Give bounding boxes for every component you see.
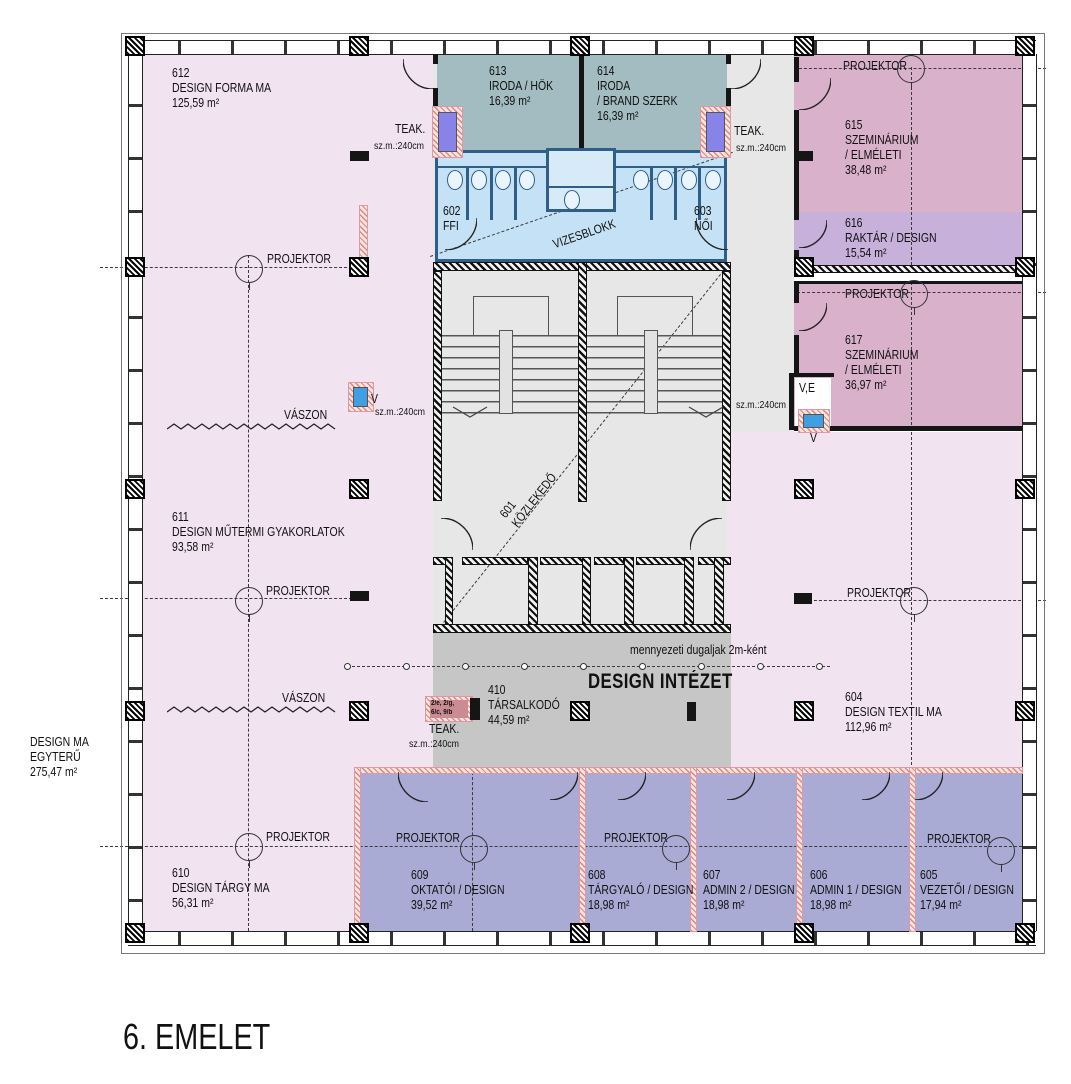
- grid-column: [125, 701, 145, 721]
- room-609-name: OKTATÓI / DESIGN: [411, 883, 505, 898]
- door-arc: [618, 772, 646, 800]
- room-615-area: 38,48 m²: [845, 163, 919, 178]
- grid-column: [794, 257, 814, 277]
- stair-wall: [722, 271, 731, 501]
- room-607-num: 607: [703, 868, 795, 883]
- sink-label: V: [371, 392, 378, 407]
- stair-wall: [578, 262, 587, 502]
- wall: [433, 54, 438, 64]
- toilet-fixture: [495, 170, 511, 190]
- ceiling-socket-note: mennyezeti dugaljak 2m-ként: [630, 643, 767, 658]
- toilet-fixture: [681, 170, 697, 190]
- ceiling-element: [350, 151, 369, 161]
- room-606-label: 606 ADMIN 1 / DESIGN 18,98 m²: [810, 868, 902, 913]
- vaszon-zigzag: [167, 705, 339, 714]
- shaft-wall: [462, 557, 528, 565]
- ve-room-label: V,E: [799, 381, 815, 396]
- projektor-label: PROJEKTOR: [604, 831, 668, 846]
- grid-column: [125, 923, 145, 943]
- room-615-name: SZEMINÁRIUM: [845, 133, 919, 148]
- grid-column: [349, 923, 369, 943]
- room-617-name: SZEMINÁRIUM: [845, 348, 919, 363]
- room-611-name: DESIGN MŰTERMI GYAKORLATOK: [172, 525, 345, 540]
- ceiling-element: [794, 151, 813, 161]
- room-612-num: 612: [172, 66, 271, 81]
- grid-column: [794, 36, 814, 56]
- room-616-num: 616: [845, 216, 937, 231]
- room-615-num: 615: [845, 118, 919, 133]
- projektor-label: PROJEKTOR: [266, 584, 330, 599]
- room-609-area: 39,52 m²: [411, 898, 505, 913]
- door-arc: [731, 59, 761, 89]
- projector-symbol: [900, 280, 928, 308]
- room-614-name: IRODA: [597, 79, 678, 94]
- shaft-wall: [445, 557, 453, 632]
- room-617-label: 617 SZEMINÁRIUM / ELMÉLETI 36,97 m²: [845, 333, 919, 393]
- ceiling-element: [470, 698, 480, 720]
- grid-column: [1015, 923, 1035, 943]
- institute-title: DESIGN INTÉZET: [588, 670, 733, 694]
- room-605-label: 605 VEZETŐI / DESIGN 17,94 m²: [920, 868, 1014, 913]
- ceiling-socket-marker: [344, 663, 351, 670]
- projector-symbol: [235, 587, 263, 615]
- room-612-area: 125,59 m²: [172, 96, 271, 111]
- room-614-num: 614: [597, 64, 678, 79]
- ceiling-element: [350, 591, 369, 601]
- screen-strip: [360, 206, 367, 261]
- sink: [353, 387, 368, 407]
- projector-symbol: [987, 837, 1015, 865]
- room-608-name: TÁRGYALÓ / DESIGN: [588, 883, 693, 898]
- shaft-wall: [540, 557, 584, 565]
- projektor-label: PROJEKTOR: [927, 832, 991, 847]
- grid-column: [570, 36, 590, 56]
- room-603-num: 603: [694, 204, 713, 219]
- room-612-label: 612 DESIGN FORMA MA 125,59 m²: [172, 66, 271, 111]
- ceiling-socket-marker: [816, 663, 823, 670]
- door-arc: [862, 772, 890, 800]
- wall: [794, 110, 799, 212]
- projektor-label: PROJEKTOR: [396, 831, 460, 846]
- room-606-area: 18,98 m²: [810, 898, 902, 913]
- room-607-label: 607 ADMIN 2 / DESIGN 18,98 m²: [703, 868, 795, 913]
- ceiling-socket-marker: [403, 663, 410, 670]
- room-606-name: ADMIN 1 / DESIGN: [810, 883, 902, 898]
- door-arc: [398, 772, 428, 802]
- teak-height-label: sz.m.:240cm: [409, 738, 459, 750]
- toilet-fixture: [564, 190, 580, 210]
- grid-column: [125, 36, 145, 56]
- room-607-area: 18,98 m²: [703, 898, 795, 913]
- toilet-partition: [674, 168, 677, 220]
- grid-column: [1015, 701, 1035, 721]
- room-608-area: 18,98 m²: [588, 898, 693, 913]
- shaft-wall: [624, 557, 634, 632]
- room-613-label: 613 IRODA / HÖK 16,39 m²: [489, 64, 553, 109]
- design-ma-label: DESIGN MA EGYTERŰ 275,47 m²: [30, 735, 89, 780]
- room-410-area: 44,59 m²: [488, 713, 560, 728]
- room-612-name: DESIGN FORMA MA: [172, 81, 271, 96]
- ceiling-element: [687, 702, 696, 721]
- design-ma-name: DESIGN MA: [30, 735, 89, 750]
- grid-column: [794, 479, 814, 499]
- ceiling-element: [794, 593, 812, 604]
- room-613-num: 613: [489, 64, 553, 79]
- shaft-wall: [636, 557, 686, 565]
- room-605-name: VEZETŐI / DESIGN: [920, 883, 1014, 898]
- sink-height-label: sz.m.:240cm: [736, 399, 786, 411]
- duct-divider: [549, 186, 613, 188]
- sink-label: V: [810, 431, 817, 446]
- toilet-fixture: [657, 170, 673, 190]
- door-arc: [696, 218, 728, 250]
- stair-arrow: [452, 406, 488, 419]
- teak-unit: [438, 112, 457, 152]
- toilet-fixture: [447, 170, 463, 190]
- door-arc: [403, 59, 433, 89]
- door-arc: [799, 78, 831, 110]
- ceiling-socket-marker: [757, 663, 764, 670]
- teak-label: TEAK.: [734, 124, 764, 139]
- ceiling-socket-marker: [698, 663, 705, 670]
- room-617-name2: / ELMÉLETI: [845, 363, 919, 378]
- door-arc: [799, 303, 827, 331]
- room-604-num: 604: [845, 690, 942, 705]
- stair-arrow: [688, 406, 724, 419]
- shaft-wall: [433, 624, 731, 633]
- vaszon-label: VÁSZON: [284, 408, 327, 423]
- grid-column: [349, 701, 369, 721]
- projector-symbol: [897, 55, 925, 83]
- partition-wall: [797, 768, 802, 931]
- room-606-num: 606: [810, 868, 902, 883]
- design-ma-area: 275,47 m²: [30, 765, 89, 780]
- ceiling-socket-marker: [462, 663, 469, 670]
- grid-column: [349, 479, 369, 499]
- wall-613-614-divider: [579, 54, 584, 152]
- room-609-label: 609 OKTATÓI / DESIGN 39,52 m²: [411, 868, 505, 913]
- projektor-label: PROJEKTOR: [267, 252, 331, 267]
- stair-wall: [433, 271, 442, 501]
- sink-height-label: sz.m.:240cm: [375, 406, 425, 418]
- shaft-wall: [594, 557, 624, 565]
- toilet-partition: [490, 168, 493, 220]
- room-605-num: 605: [920, 868, 1014, 883]
- teak-unit: [706, 112, 725, 152]
- shaft-wall: [582, 557, 591, 632]
- door-arc: [915, 772, 943, 800]
- vaszon-zigzag: [167, 422, 339, 431]
- duct-shaft: [546, 148, 616, 212]
- teak-height-label: sz.m.:240cm: [736, 142, 786, 154]
- room-610-num: 610: [172, 866, 270, 881]
- wall: [794, 212, 799, 220]
- toilet-fixture: [633, 170, 649, 190]
- vaszon-label: VÁSZON: [282, 691, 325, 706]
- ceiling-socket-marker: [580, 663, 587, 670]
- projector-symbol: [235, 255, 263, 283]
- shaft-wall: [684, 557, 694, 632]
- room-614-label: 614 IRODA / BRAND SZERK 16,39 m²: [597, 64, 678, 124]
- ceiling-socket-marker: [639, 663, 646, 670]
- grid-column: [570, 701, 590, 721]
- room-615-label: 615 SZEMINÁRIUM / ELMÉLETI 38,48 m²: [845, 118, 919, 178]
- projektor-label: PROJEKTOR: [266, 830, 330, 845]
- partition-wall: [355, 768, 360, 931]
- design-ma-name2: EGYTERŰ: [30, 750, 89, 765]
- room-604-area: 112,96 m²: [845, 720, 942, 735]
- projector-symbol: [460, 835, 488, 863]
- door-arc: [690, 518, 722, 550]
- room-604-label: 604 DESIGN TEXTIL MA 112,96 m²: [845, 690, 942, 735]
- room-608-label: 608 TÁRGYALÓ / DESIGN 18,98 m²: [588, 868, 693, 913]
- teak-label: TEAK.: [429, 722, 459, 737]
- room-410-num: 410: [488, 683, 560, 698]
- stair-newel: [499, 330, 513, 414]
- room-607-name: ADMIN 2 / DESIGN: [703, 883, 795, 898]
- wall: [794, 335, 799, 377]
- floor-title: 6. EMELET: [123, 1016, 270, 1058]
- wall-616-bottom: [794, 265, 1022, 273]
- sink: [803, 414, 824, 428]
- stair-newel: [644, 330, 658, 414]
- door-arc: [799, 220, 827, 248]
- room-614-area: 16,39 m²: [597, 109, 678, 124]
- grid-column: [349, 36, 369, 56]
- room-614-name2: / BRAND SZERK: [597, 94, 678, 109]
- toilet-fixture: [519, 170, 535, 190]
- room-611-area: 93,58 m²: [172, 540, 345, 555]
- grid-column: [794, 701, 814, 721]
- toilet-fixture: [705, 170, 721, 190]
- wall-ve-room: [789, 373, 834, 377]
- shaft-wall: [714, 557, 724, 632]
- teak-ref-note: 6/c, 9/b: [431, 709, 452, 717]
- room-611-num: 611: [172, 510, 345, 525]
- teak-ref-note: 2/e, 2/g,: [431, 700, 454, 708]
- room-604-name: DESIGN TEXTIL MA: [845, 705, 942, 720]
- room-617-num: 617: [845, 333, 919, 348]
- room-616-label: 616 RAKTÁR / DESIGN 15,54 m²: [845, 216, 937, 261]
- teak-height-label: sz.m.:240cm: [374, 140, 424, 152]
- room-617-area: 36,97 m²: [845, 378, 919, 393]
- teak-label: TEAK.: [395, 122, 425, 137]
- grid-column: [125, 257, 145, 277]
- floor-plan: 612 DESIGN FORMA MA 125,59 m² 613 IRODA …: [0, 0, 1071, 1084]
- room-613-name: IRODA / HÖK: [489, 79, 553, 94]
- door-arc: [727, 772, 755, 800]
- grid-column: [1015, 479, 1035, 499]
- room-616-area: 15,54 m²: [845, 246, 937, 261]
- grid-column: [794, 923, 814, 943]
- room-605-area: 17,94 m²: [920, 898, 1014, 913]
- projector-symbol: [900, 587, 928, 615]
- grid-column: [125, 479, 145, 499]
- room-609-num: 609: [411, 868, 505, 883]
- room-616-name: RAKTÁR / DESIGN: [845, 231, 937, 246]
- ceiling-socket-marker: [521, 663, 528, 670]
- room-613-area: 16,39 m²: [489, 94, 553, 109]
- grid-column: [570, 923, 590, 943]
- grid-column: [1015, 36, 1035, 56]
- projector-symbol: [662, 835, 690, 863]
- room-610-label: 610 DESIGN TÁRGY MA 56,31 m²: [172, 866, 270, 911]
- room-610-area: 56,31 m²: [172, 896, 270, 911]
- shaft-wall: [528, 557, 538, 632]
- projector-symbol: [235, 833, 263, 861]
- toilet-partition: [466, 168, 469, 220]
- grid-column: [1015, 257, 1035, 277]
- toilet-fixture: [471, 170, 487, 190]
- door-arc: [550, 772, 578, 800]
- room-608-num: 608: [588, 868, 693, 883]
- toilet-partition: [514, 168, 517, 220]
- door-arc: [441, 518, 473, 550]
- room-602-num: 602: [443, 204, 461, 219]
- grid-column: [349, 257, 369, 277]
- room-611-label: 611 DESIGN MŰTERMI GYAKORLATOK 93,58 m²: [172, 510, 345, 555]
- room-615-name2: / ELMÉLETI: [845, 148, 919, 163]
- room-410-label: 410 TÁRSALKODÓ 44,59 m²: [488, 683, 560, 728]
- toilet-partition: [650, 168, 653, 220]
- wall: [794, 283, 799, 303]
- door-arc: [445, 218, 477, 250]
- room-610-name: DESIGN TÁRGY MA: [172, 881, 270, 896]
- room-410-name: TÁRSALKODÓ: [488, 698, 560, 713]
- wall-ve-room: [789, 373, 794, 430]
- partition-wall: [580, 768, 585, 931]
